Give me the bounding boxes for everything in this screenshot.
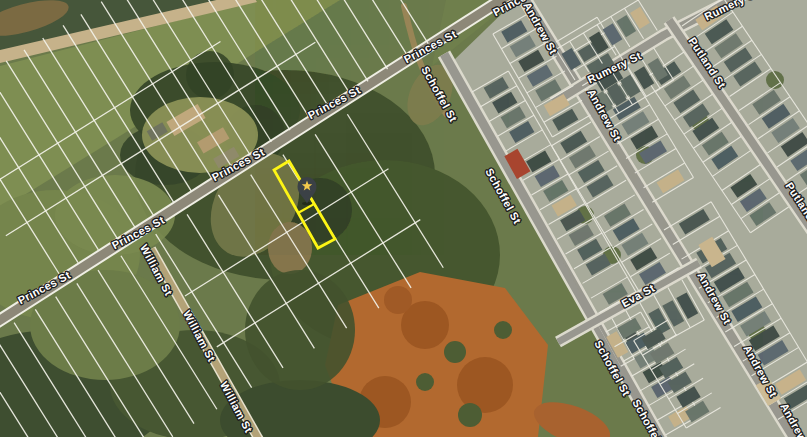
- shrub: [416, 373, 434, 391]
- shrub: [494, 321, 512, 339]
- satellite-map-viewport[interactable]: Princes StPrinces StPrinces StPrinces St…: [0, 0, 807, 437]
- shrub: [444, 341, 466, 363]
- dirt-dark: [384, 286, 412, 314]
- satellite-map[interactable]: Princes StPrinces StPrinces StPrinces St…: [0, 0, 807, 437]
- tree-mass: [245, 270, 355, 390]
- shrub: [458, 403, 482, 427]
